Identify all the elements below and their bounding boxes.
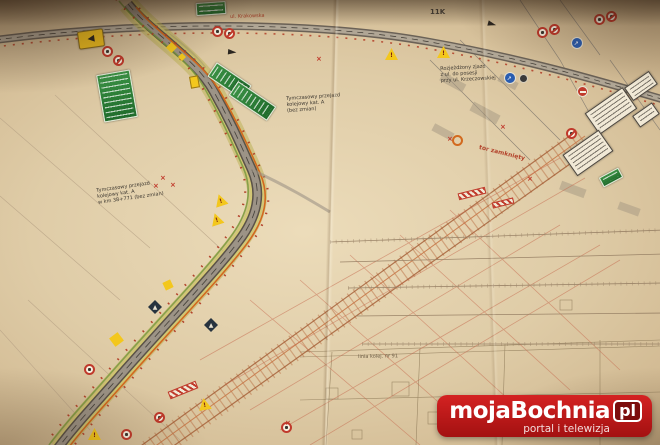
- mojabochnia-logo: mojaBochnia pl portal i telewizja: [437, 395, 652, 438]
- map-annotation: 11K: [430, 8, 445, 16]
- logo-brand-text: mojaBochnia: [449, 400, 610, 423]
- map-annotation: Rozjeżdżony zjazdz ul. do posesjiprzy ul…: [440, 63, 496, 84]
- map-annotation: Tymczasowy przejazdkolejowy kat. Aw km 3…: [96, 179, 164, 206]
- map-annotation: Tymczasowy przejazdkolejowy kat. A(bez z…: [286, 92, 341, 114]
- logo-row: mojaBochnia pl: [449, 400, 642, 423]
- map-annotation: ul. Krakowska: [230, 13, 265, 20]
- logo-tagline: portal i telewizja: [523, 424, 610, 435]
- logo-tld-badge: pl: [613, 400, 642, 422]
- annotations-layer: Tymczasowy przejazdkolejowy kat. Aw km 3…: [0, 0, 660, 445]
- map-annotation: tor zamknięty: [478, 144, 525, 162]
- map-annotation: linia kolej. nr 91: [358, 353, 398, 360]
- traffic-plan-photo: Tymczasowy przejazdkolejowy kat. Aw km 3…: [0, 0, 660, 445]
